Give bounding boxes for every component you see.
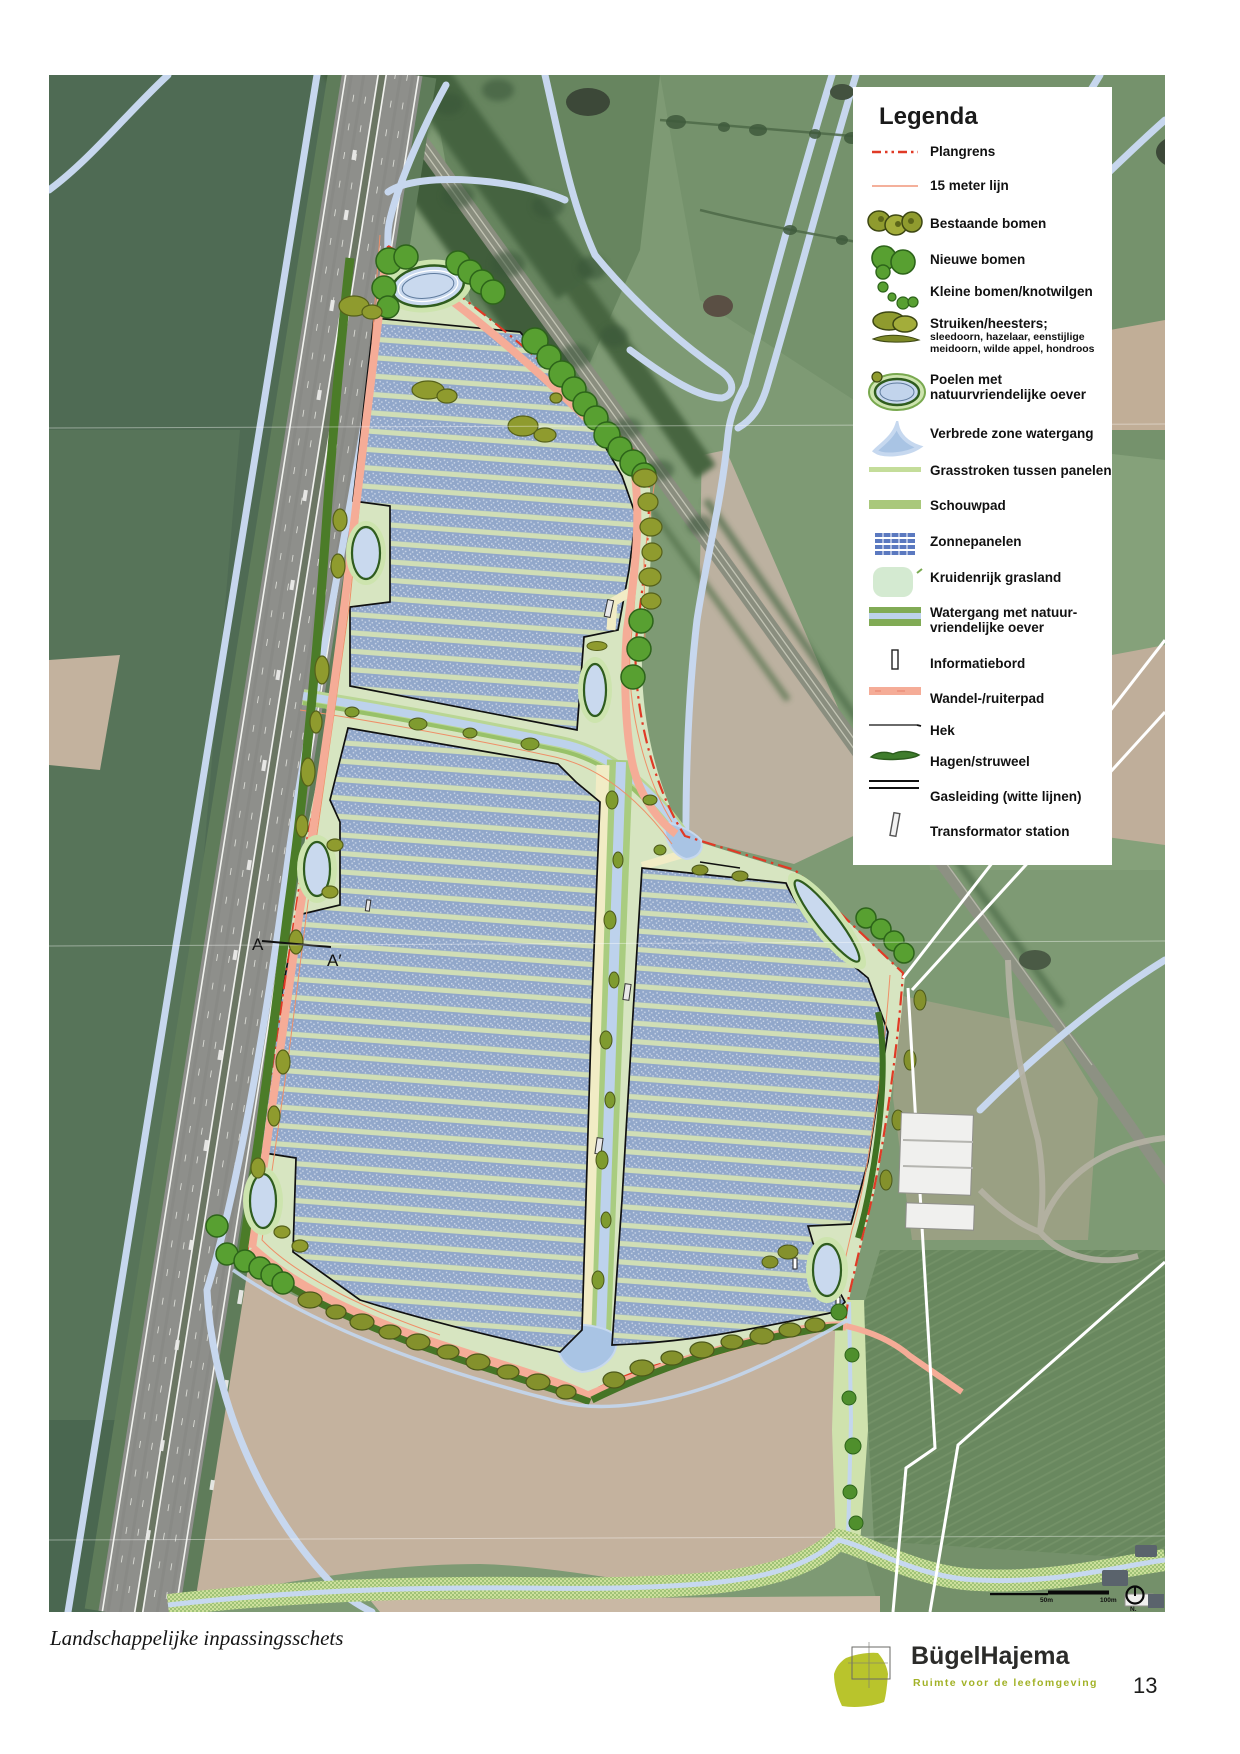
svg-text:50m: 50m	[1040, 1597, 1053, 1604]
svg-text:N.: N.	[1130, 1606, 1137, 1612]
svg-text:A: A	[252, 935, 264, 954]
svg-text:A′: A′	[327, 951, 342, 970]
svg-text:100m: 100m	[1100, 1597, 1117, 1604]
